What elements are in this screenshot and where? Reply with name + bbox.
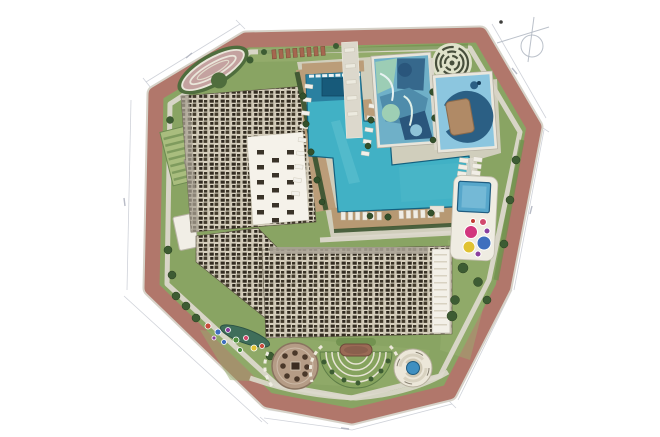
courtyard-furniture-row-item	[257, 180, 264, 185]
shrub-item	[261, 49, 267, 55]
deck-trees-item	[319, 199, 325, 205]
pool-head-loungers-item	[316, 74, 321, 77]
north-arrow-line-ns	[528, 17, 534, 62]
amphitheater-shrubs-item	[379, 369, 384, 374]
loungers-west-deck-item	[293, 178, 301, 183]
courtyard-furniture-row-item	[272, 218, 279, 223]
sunbeds-north-lawn-item	[293, 48, 298, 57]
spa-pool	[407, 362, 420, 375]
block-balcony-dividers-item	[434, 254, 447, 256]
courtyard-furniture-row-item	[257, 150, 264, 155]
courtyard-furniture-row-item	[287, 150, 294, 155]
splash-pad-circles-item	[463, 241, 475, 253]
trees-east-lawn-item	[458, 263, 468, 273]
cafe-tables-item	[282, 353, 288, 359]
block-balcony-dividers-item	[434, 282, 447, 284]
path-benches-north-item	[345, 64, 355, 69]
playground-equipment-item	[215, 329, 221, 335]
loungers-east-lawn-item	[458, 164, 468, 170]
amphitheater-stage-oval	[344, 346, 368, 354]
courtyard-furniture-row-item	[287, 180, 294, 185]
splash-pad-circles-item	[480, 219, 487, 226]
courtyard-furniture-row-item	[287, 195, 294, 200]
splash-pad-circles-item	[475, 251, 481, 257]
sunbeds-north-lawn-item	[279, 49, 284, 58]
dimension-line-left	[127, 100, 131, 290]
block-balcony-dividers-item	[434, 275, 447, 277]
playground-equipment-item	[226, 328, 231, 333]
trees-left-lawn-item	[164, 246, 172, 254]
loungers-south-deck-item	[413, 210, 418, 218]
courtyard-furniture-row-item	[257, 195, 264, 200]
courtyard-furniture-row-item	[257, 165, 264, 170]
sunbeds-north-lawn-item	[272, 50, 277, 59]
trees-between-pools-item	[430, 137, 436, 143]
block-south-roof-strip	[270, 247, 428, 254]
courtyard-furniture-row-item	[287, 165, 294, 170]
site-plan-figure	[0, 0, 660, 437]
loungers-south-deck-item	[348, 212, 353, 220]
playground-equipment-item	[205, 323, 211, 329]
courtyard-furniture-row-item	[272, 188, 279, 193]
path-benches-north-item	[348, 112, 358, 117]
plan-layers	[124, 17, 549, 430]
deck-trees-item	[368, 117, 374, 123]
kids-pool-shallow	[461, 185, 486, 208]
deck-trees-item	[300, 93, 306, 99]
pool-head-loungers-item	[335, 74, 340, 77]
courtyard-furniture-row-item	[257, 210, 264, 215]
loungers-south-deck-item	[377, 212, 382, 220]
cafe-tables-item	[292, 350, 298, 356]
main-pool-water-highlight	[399, 163, 461, 202]
sunbeds-north-lawn-item	[307, 47, 312, 56]
labyrinth-center	[450, 61, 455, 66]
deck-trees-item	[303, 121, 309, 127]
amphitheater-shrubs-item	[386, 359, 391, 364]
courtyard-furniture-row-item	[272, 173, 279, 178]
deck-trees-item	[365, 143, 371, 149]
cafe-tables-item	[304, 364, 310, 370]
dimension-text-mark	[530, 206, 532, 214]
pool-head-loungers-item	[329, 74, 334, 77]
amphitheater-shrubs-item	[322, 360, 327, 365]
block-balcony-dividers-item	[434, 310, 447, 312]
loungers-west-deck-item	[298, 137, 306, 142]
amphitheater-shrubs-item	[342, 378, 347, 383]
sunbeds-north-lawn-item	[286, 49, 291, 58]
leisure-pool-slide-tower	[445, 98, 475, 136]
path-benches-north-item	[344, 48, 354, 53]
amphitheater-shrubs-item	[330, 370, 335, 375]
playground-equipment-item	[222, 340, 227, 345]
splash-pad-circles-item	[484, 228, 490, 234]
loungers-east-lawn-item	[471, 170, 481, 176]
pool-head-loungers-item	[322, 74, 327, 77]
survey-point-dot	[499, 20, 503, 24]
sunbeds-north-lawn-item	[321, 46, 326, 55]
pool-bar-structure	[322, 78, 344, 96]
loungers-south-deck-item	[341, 212, 346, 220]
cafe-tables-item	[302, 354, 308, 360]
loungers-west-deck-item	[291, 191, 299, 196]
dimension-tick	[236, 20, 245, 29]
trees-right-road-item	[512, 156, 520, 164]
loungers-west-deck-item	[305, 84, 313, 89]
loungers-west-deck-item	[301, 111, 309, 116]
amphitheater-shrubs-item	[356, 381, 361, 386]
courtyard-furniture-row-item	[272, 203, 279, 208]
loungers-south-deck-item	[363, 212, 368, 220]
playground-equipment-item	[244, 336, 249, 341]
loungers-south-deck-item	[406, 210, 411, 218]
dimension-text-mark	[341, 428, 349, 429]
trees-left-lawn-item	[167, 117, 174, 124]
trees-right-road-item	[506, 196, 514, 204]
site-plan-canvas	[0, 0, 660, 437]
deck-trees-item	[385, 214, 391, 220]
trees-east-lawn-item	[474, 278, 483, 287]
block-balcony-dividers-item	[434, 268, 447, 270]
dimension-text-mark	[186, 53, 192, 58]
sunbeds-north-lawn-item	[314, 47, 319, 56]
cafe-tables-item	[280, 363, 286, 369]
cafe-kiosk	[291, 362, 300, 370]
path-benches-north-item	[346, 80, 356, 85]
trees-left-lawn-item	[172, 292, 180, 300]
courtyard-furniture-row-item	[287, 210, 294, 215]
dimension-text-mark	[124, 198, 125, 206]
path-benches-north-item	[347, 96, 357, 101]
north-arrow-circle	[521, 35, 543, 57]
playground-equipment-item	[260, 344, 265, 349]
cafe-tables-item	[294, 376, 300, 382]
block-balcony-dividers-item	[434, 317, 447, 319]
deck-trees-item	[367, 213, 373, 219]
shrubs-playground-item	[192, 314, 200, 322]
splash-pad-circles-item	[471, 219, 476, 224]
block-balcony-dividers-item	[434, 324, 447, 326]
cafe-tables-item	[284, 373, 290, 379]
sunbeds-north-lawn-item	[300, 48, 305, 57]
loungers-west-deck-item	[296, 151, 304, 156]
playground-equipment-item	[238, 348, 243, 353]
loungers-east-lawn-item	[459, 158, 469, 164]
trees-left-lawn-item	[168, 271, 176, 279]
deck-trees-item	[308, 149, 314, 155]
splash-pad-circles-item	[465, 226, 478, 239]
pool-head-loungers-item	[309, 75, 314, 78]
trees-east-lawn-item	[451, 296, 460, 305]
playground-equipment-item	[251, 345, 257, 351]
trees-east-lawn-item	[483, 296, 491, 304]
loungers-east-lawn-item	[473, 157, 483, 163]
block-balcony-dividers-item	[434, 296, 447, 298]
shrub-item	[247, 57, 254, 64]
loungers-west-deck-item	[295, 164, 303, 169]
trees-right-road-item	[500, 240, 508, 248]
splash-pad-circles-item	[477, 236, 491, 250]
residential-block-south	[262, 246, 452, 338]
shrubs-playground-item	[182, 302, 190, 310]
deck-trees-item	[428, 210, 434, 216]
block-balcony-dividers-item	[434, 289, 447, 291]
cafe-tables-item	[302, 371, 308, 377]
amphitheater-shrubs-item	[369, 377, 374, 382]
playground-equipment-item	[212, 336, 216, 340]
playground-equipment-item	[233, 337, 239, 343]
courtyard-furniture-row-item	[272, 158, 279, 163]
block-balcony-dividers-item	[434, 303, 447, 305]
loungers-south-deck-item	[355, 212, 360, 220]
shrub-item	[333, 43, 339, 49]
trees-east-lawn-item	[447, 311, 457, 321]
loungers-east-lawn-item	[472, 163, 482, 169]
loungers-south-deck-item	[420, 210, 425, 218]
deck-trees-item	[314, 177, 320, 183]
block-balcony-dividers-item	[434, 261, 447, 263]
loungers-south-deck-item	[399, 211, 404, 219]
